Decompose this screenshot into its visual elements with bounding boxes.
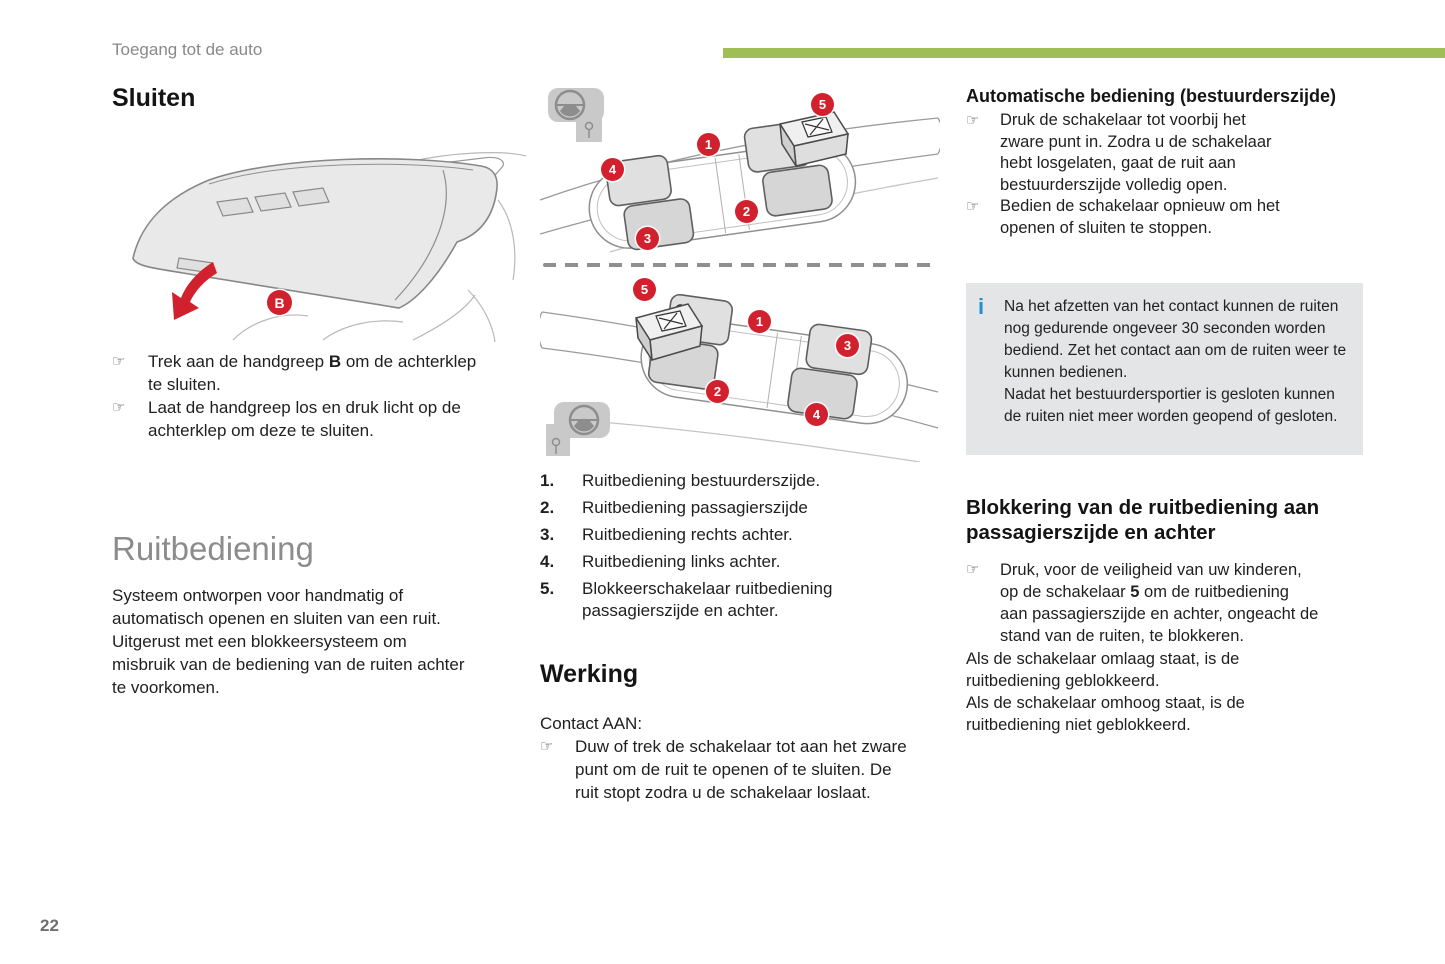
manual-page: Toegang tot de auto Sluiten B ☞ Trek aan…	[0, 0, 1445, 964]
callout-5: 5	[633, 278, 656, 301]
info-note-box: i Na het afzetten van het contact kunnen…	[966, 283, 1363, 455]
bullet-text: Duw of trek de schakelaar tot aan het zw…	[575, 735, 915, 804]
tailgate-figure	[113, 140, 528, 345]
hand-bullet-icon: ☞	[966, 196, 1000, 218]
legend-number: 4.	[540, 551, 582, 573]
sluiten-bullet-list: ☞ Trek aan de handgreep B om de achterkl…	[112, 350, 518, 442]
bullet-bold-ref: B	[329, 352, 341, 371]
info-paragraph: Na het afzetten van het contact kunnen d…	[1004, 296, 1349, 384]
ruitbediening-intro: Systeem ontworpen voor handmatig of auto…	[112, 584, 470, 699]
section-title-blokkering: Blokkering van de ruitbediening aan pass…	[966, 495, 1338, 545]
callout-1: 1	[697, 133, 720, 156]
legend-number: 5.	[540, 578, 582, 622]
bullet-text: Druk, voor de veiligheid van uw kinderen…	[1000, 559, 1320, 647]
section-title-automatische-bediening: Automatische bediening (bestuurderszijde…	[966, 86, 1336, 107]
paragraph: Als de schakelaar omlaag staat, is de ru…	[966, 648, 1296, 692]
section-title-sluiten: Sluiten	[112, 84, 195, 113]
hand-bullet-icon: ☞	[112, 350, 148, 373]
blokkering-status-paragraphs: Als de schakelaar omlaag staat, is de ru…	[966, 648, 1296, 736]
auto-bullet-list: ☞ Druk de schakelaar tot voorbij het zwa…	[966, 110, 1366, 239]
legend-item: 3. Ruitbediening rechts achter.	[540, 524, 938, 546]
bullet-text: Trek aan de handgreep B om de achterklep…	[148, 350, 483, 396]
callout-2: 2	[735, 200, 758, 223]
hand-bullet-icon: ☞	[966, 559, 1000, 581]
callout-4: 4	[601, 158, 624, 181]
legend-item: 2. Ruitbediening passagierszijde	[540, 497, 938, 519]
bullet-item: ☞ Bedien de schakelaar opnieuw om het op…	[966, 196, 1366, 239]
steering-wheel-icon	[548, 88, 604, 142]
legend-item: 5. Blokkeerschakelaar ruitbediening pass…	[540, 578, 938, 622]
legend-text: Ruitbediening links achter.	[582, 551, 780, 573]
bullet-text-part: Trek aan de handgreep	[148, 352, 329, 371]
legend-item: 1. Ruitbediening bestuurderszijde.	[540, 470, 938, 492]
callout-2: 2	[706, 380, 729, 403]
callout-3: 3	[636, 227, 659, 250]
legend-item: 4. Ruitbediening links achter.	[540, 551, 938, 573]
legend-number: 1.	[540, 470, 582, 492]
bullet-text: Bedien de schakelaar opnieuw om het open…	[1000, 196, 1290, 239]
legend-text: Ruitbediening passagierszijde	[582, 497, 808, 519]
contact-state-line: Contact AAN:	[540, 712, 642, 735]
blokkering-bullet-list: ☞ Druk, voor de veiligheid van uw kinder…	[966, 559, 1366, 647]
legend-text: Ruitbediening bestuurderszijde.	[582, 470, 820, 492]
callout-4: 4	[805, 403, 828, 426]
rocker-switch-rear-right	[623, 198, 694, 251]
callout-3: 3	[836, 334, 859, 357]
switch-legend: 1. Ruitbediening bestuurderszijde. 2. Ru…	[540, 470, 938, 627]
bullet-item: ☞ Druk, voor de veiligheid van uw kinder…	[966, 559, 1366, 647]
bullet-text: Druk de schakelaar tot voorbij het zware…	[1000, 110, 1290, 196]
callout-5: 5	[811, 93, 834, 116]
rocker-switch-passenger	[762, 164, 833, 217]
paragraph: Als de schakelaar omhoog staat, is de ru…	[966, 692, 1296, 736]
running-header: Toegang tot de auto	[112, 40, 262, 60]
legend-text: Blokkeerschakelaar ruitbediening passagi…	[582, 578, 912, 622]
bullet-item: ☞ Duw of trek de schakelaar tot aan het …	[540, 735, 938, 804]
info-paragraph: Nadat het bestuurdersportier is gesloten…	[1004, 384, 1349, 428]
callout-1: 1	[748, 310, 771, 333]
page-number: 22	[40, 916, 59, 936]
figure-divider	[543, 263, 935, 267]
switch-panel-figure-lhd	[540, 80, 940, 268]
section-title-werking: Werking	[540, 660, 638, 689]
werking-bullet-list: ☞ Duw of trek de schakelaar tot aan het …	[540, 735, 938, 804]
accent-bar	[723, 48, 1445, 58]
steering-wheel-icon	[546, 402, 610, 456]
info-note-text: Na het afzetten van het contact kunnen d…	[1004, 296, 1349, 455]
bullet-item: ☞ Laat de handgreep los en druk licht op…	[112, 396, 518, 442]
switch-panel-figure-rhd	[540, 272, 940, 462]
info-icon: i	[978, 296, 1004, 455]
bullet-item: ☞ Druk de schakelaar tot voorbij het zwa…	[966, 110, 1366, 196]
bullet-text: Laat de handgreep los en druk licht op d…	[148, 396, 483, 442]
legend-number: 3.	[540, 524, 582, 546]
hand-bullet-icon: ☞	[966, 110, 1000, 132]
label-badge-b: B	[267, 290, 292, 315]
legend-number: 2.	[540, 497, 582, 519]
section-title-ruitbediening: Ruitbediening	[112, 530, 314, 568]
legend-text: Ruitbediening rechts achter.	[582, 524, 793, 546]
hand-bullet-icon: ☞	[112, 396, 148, 419]
bullet-item: ☞ Trek aan de handgreep B om de achterkl…	[112, 350, 518, 396]
hand-bullet-icon: ☞	[540, 735, 575, 758]
